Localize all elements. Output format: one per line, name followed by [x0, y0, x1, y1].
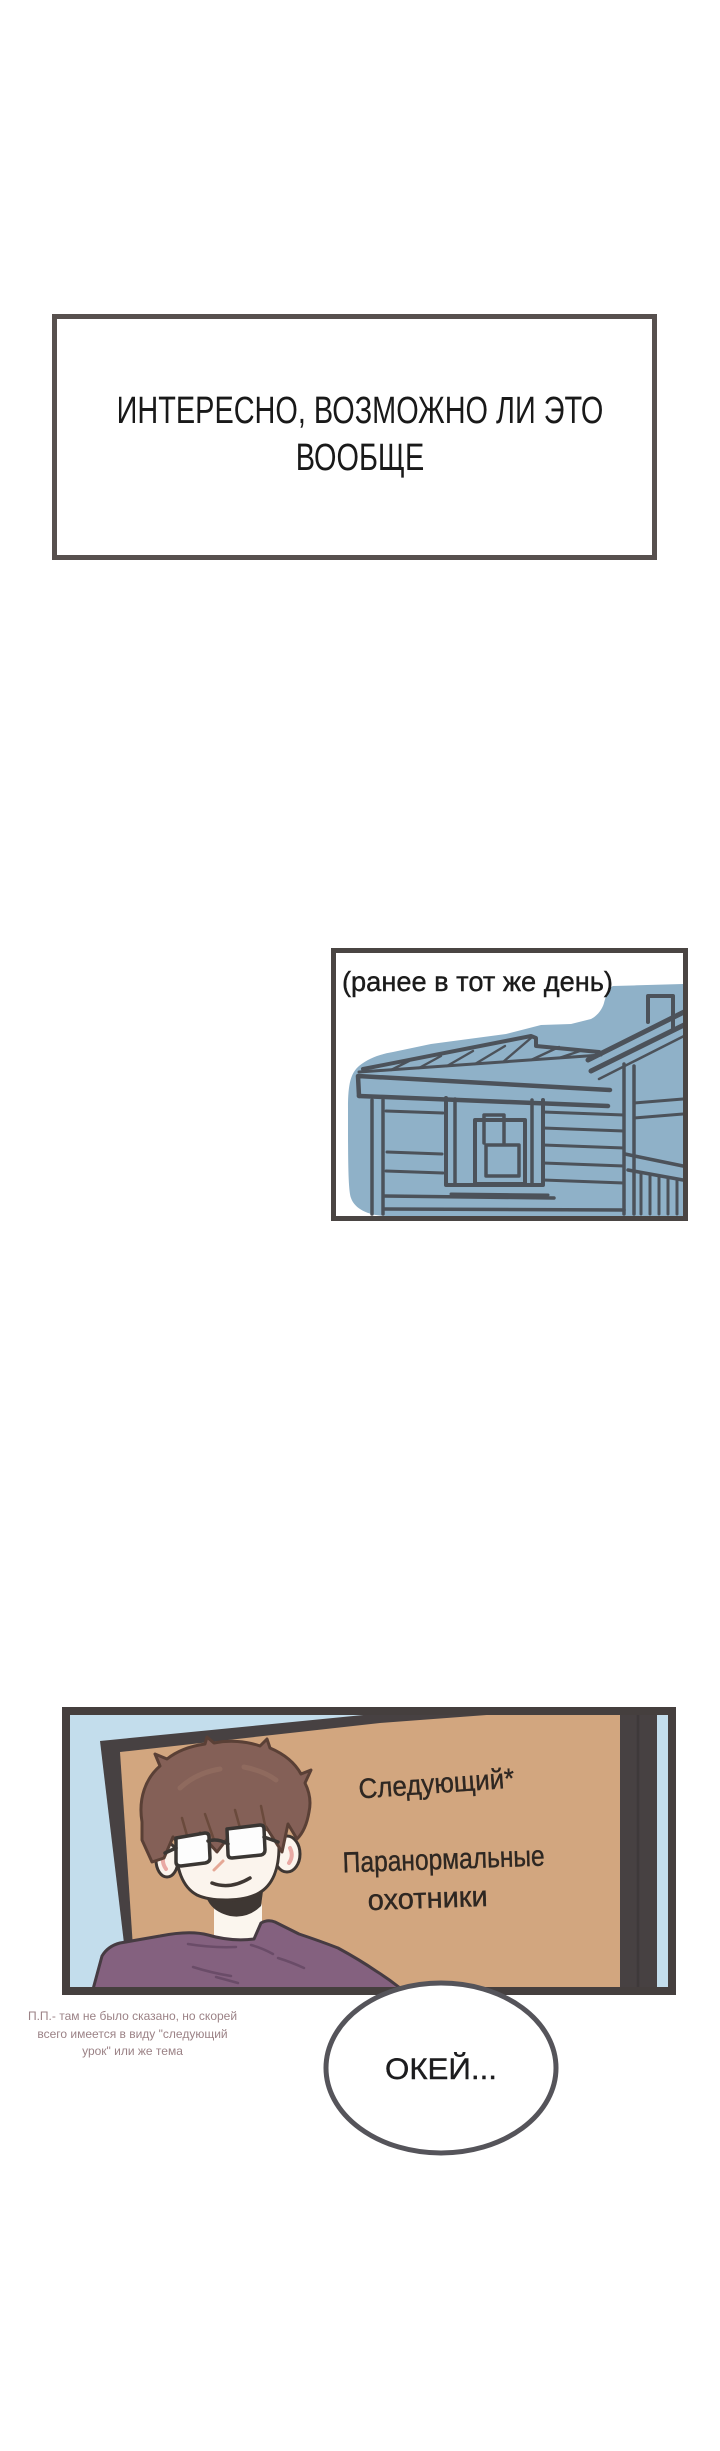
svg-text:охотники: охотники [367, 1881, 488, 1917]
svg-text:ОКЕЙ...: ОКЕЙ... [385, 2052, 497, 2086]
svg-text:(ранее в тот же день): (ранее в тот же день) [342, 966, 613, 997]
